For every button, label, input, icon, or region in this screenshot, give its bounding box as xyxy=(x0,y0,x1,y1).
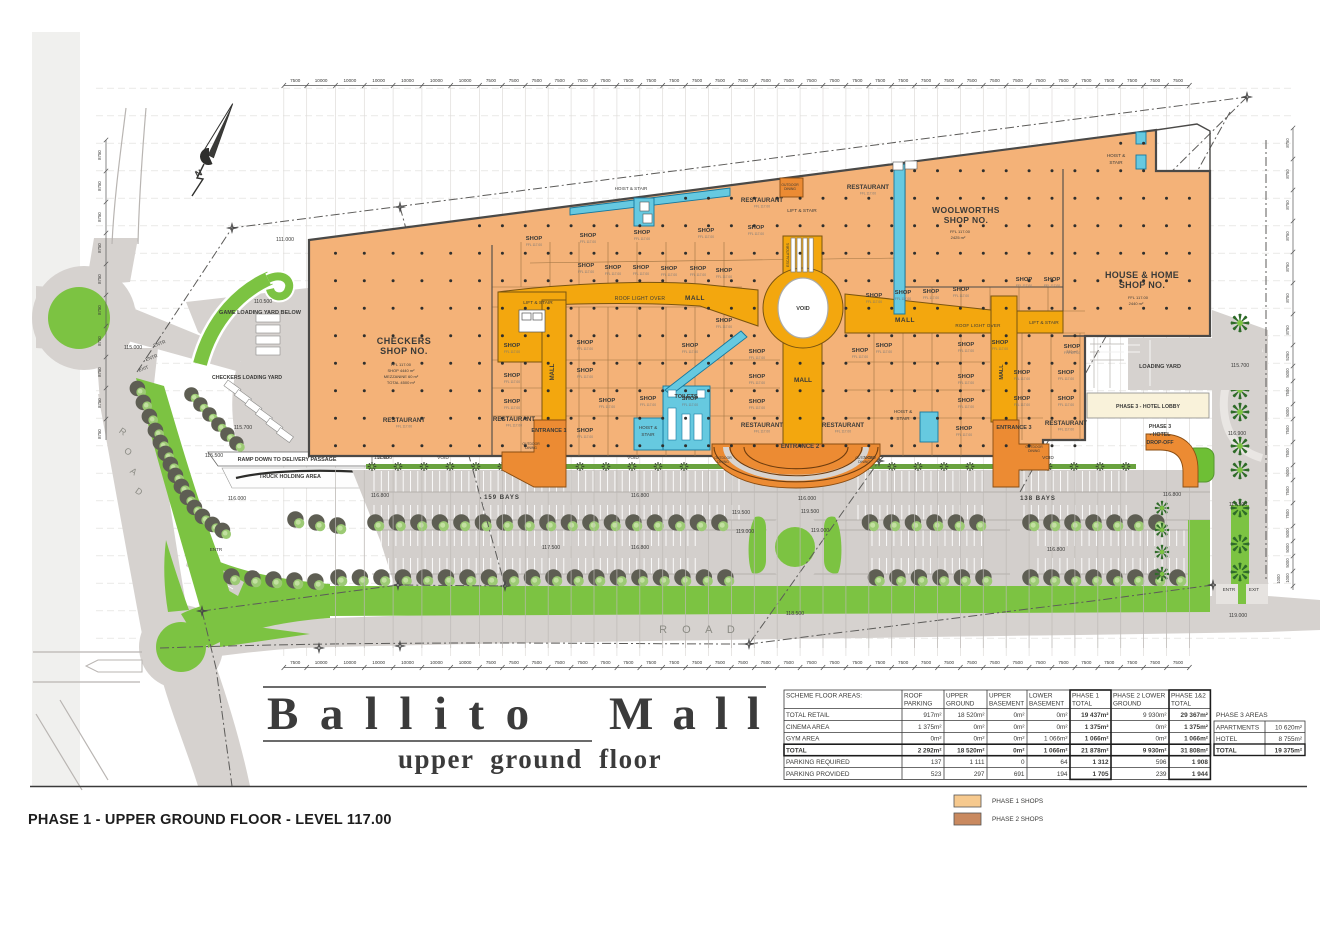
svg-text:8750: 8750 xyxy=(1285,293,1290,303)
svg-text:1 944: 1 944 xyxy=(1192,771,1208,778)
svg-text:FFL 117.00: FFL 117.00 xyxy=(698,235,714,239)
svg-text:7500: 7500 xyxy=(898,660,909,665)
svg-text:7500: 7500 xyxy=(944,78,955,83)
svg-text:7500: 7500 xyxy=(1173,660,1184,665)
svg-text:740 m²: 740 m² xyxy=(1066,350,1078,354)
svg-text:7500: 7500 xyxy=(1104,660,1115,665)
svg-text:117.500: 117.500 xyxy=(1229,502,1247,508)
svg-text:18 520m²: 18 520m² xyxy=(957,748,984,755)
svg-text:7500: 7500 xyxy=(290,78,301,83)
svg-text:FFL 117.00: FFL 117.00 xyxy=(396,425,412,429)
svg-text:8750: 8750 xyxy=(97,305,102,315)
svg-text:FFL 117.00: FFL 117.00 xyxy=(690,273,706,277)
svg-text:FFL 117.00: FFL 117.00 xyxy=(860,192,876,196)
svg-text:SCHEME FLOOR AREAS:: SCHEME FLOOR AREAS: xyxy=(786,693,862,700)
svg-text:7500: 7500 xyxy=(1013,660,1024,665)
svg-text:FFL 117.00: FFL 117.00 xyxy=(958,349,974,353)
svg-text:SHOP: SHOP xyxy=(1014,396,1031,402)
svg-text:10000: 10000 xyxy=(315,78,328,83)
svg-text:115.000: 115.000 xyxy=(124,345,142,351)
svg-text:596: 596 xyxy=(1156,759,1167,766)
svg-text:5000: 5000 xyxy=(1285,543,1290,553)
svg-text:FFL 117.00: FFL 117.00 xyxy=(640,403,656,407)
svg-text:SHOP: SHOP xyxy=(923,289,940,295)
svg-text:8750: 8750 xyxy=(97,243,102,253)
svg-text:GROUND: GROUND xyxy=(1113,701,1142,708)
svg-text:8750: 8750 xyxy=(1285,138,1290,148)
svg-text:10000: 10000 xyxy=(315,660,328,665)
svg-text:1000: 1000 xyxy=(1276,574,1281,584)
svg-text:18 520m²: 18 520m² xyxy=(958,712,985,719)
svg-text:HOIST & STAIR: HOIST & STAIR xyxy=(615,186,648,191)
svg-text:116.800: 116.800 xyxy=(631,493,649,499)
svg-text:7500: 7500 xyxy=(829,78,840,83)
svg-text:FFL 117.00: FFL 117.00 xyxy=(633,272,649,276)
svg-text:ROOF: ROOF xyxy=(904,693,923,700)
svg-text:9 930m²: 9 930m² xyxy=(1143,712,1166,719)
svg-text:ENTR: ENTR xyxy=(210,547,223,552)
svg-text:FFL 117.00: FFL 117.00 xyxy=(504,406,520,410)
svg-text:HOIST &: HOIST & xyxy=(894,409,912,414)
svg-text:SHOP NO.: SHOP NO. xyxy=(380,346,428,356)
svg-text:FFL 117.00: FFL 117.00 xyxy=(682,403,698,407)
svg-text:SHOP: SHOP xyxy=(633,265,650,271)
svg-text:1 375m²: 1 375m² xyxy=(1184,724,1208,731)
svg-text:21 878m²: 21 878m² xyxy=(1081,748,1108,755)
svg-text:TOILETS: TOILETS xyxy=(674,394,697,400)
svg-text:FFL 117.00: FFL 117.00 xyxy=(866,300,882,304)
svg-text:SHOP: SHOP xyxy=(1016,277,1033,283)
svg-text:SHOP 4440 m²: SHOP 4440 m² xyxy=(387,368,415,373)
svg-text:UPPER: UPPER xyxy=(989,693,1011,700)
svg-text:1 375m²: 1 375m² xyxy=(1085,724,1109,731)
svg-text:7500: 7500 xyxy=(784,660,795,665)
svg-text:1 066m²: 1 066m² xyxy=(1184,736,1208,743)
svg-text:8 755m²: 8 755m² xyxy=(1279,736,1302,743)
svg-text:8750: 8750 xyxy=(1285,262,1290,272)
svg-text:7500: 7500 xyxy=(715,660,726,665)
svg-text:116.000: 116.000 xyxy=(798,496,816,502)
svg-text:239: 239 xyxy=(1156,771,1167,778)
svg-text:FFL 117.00: FFL 117.00 xyxy=(580,240,596,244)
svg-text:7500: 7500 xyxy=(875,78,886,83)
svg-text:10000: 10000 xyxy=(459,78,472,83)
svg-text:1 375m²: 1 375m² xyxy=(918,724,941,731)
svg-text:SHOP: SHOP xyxy=(992,340,1009,346)
svg-text:DINING: DINING xyxy=(525,446,537,450)
svg-text:RAMP DOWN TO DELIVERY PASSAGE: RAMP DOWN TO DELIVERY PASSAGE xyxy=(238,457,337,463)
svg-text:FFL 117.00: FFL 117.00 xyxy=(1128,295,1149,300)
svg-text:31 808m²: 31 808m² xyxy=(1181,748,1208,755)
svg-text:7500: 7500 xyxy=(784,78,795,83)
svg-text:SHOP: SHOP xyxy=(716,268,733,274)
svg-text:FFL 117.00: FFL 117.00 xyxy=(504,350,520,354)
svg-text:7500: 7500 xyxy=(921,78,932,83)
svg-text:116.000: 116.000 xyxy=(228,496,246,502)
svg-text:7500: 7500 xyxy=(1035,660,1046,665)
svg-text:7500: 7500 xyxy=(1035,78,1046,83)
svg-text:116.800: 116.800 xyxy=(631,545,649,551)
svg-text:1 908: 1 908 xyxy=(1192,759,1208,766)
svg-text:7500: 7500 xyxy=(898,78,909,83)
svg-text:7500: 7500 xyxy=(967,660,978,665)
svg-text:TOTAL: TOTAL xyxy=(1072,701,1092,708)
svg-text:19 437m²: 19 437m² xyxy=(1081,712,1108,719)
svg-text:FFL 117.00: FFL 117.00 xyxy=(852,355,868,359)
svg-text:7500: 7500 xyxy=(646,78,657,83)
svg-text:FFL 117.00: FFL 117.00 xyxy=(634,237,650,241)
svg-text:7500: 7500 xyxy=(623,78,634,83)
svg-text:SHOP: SHOP xyxy=(866,293,883,299)
svg-text:FFL 117.00: FFL 117.00 xyxy=(835,430,851,434)
svg-text:FFL 117.00: FFL 117.00 xyxy=(956,433,972,437)
svg-text:HOIST &: HOIST & xyxy=(639,425,657,430)
svg-text:BASEMENT: BASEMENT xyxy=(1029,701,1064,708)
svg-text:5000: 5000 xyxy=(1285,558,1290,568)
svg-text:Mall: Mall xyxy=(609,688,779,740)
svg-text:917m²: 917m² xyxy=(923,712,941,719)
svg-text:SHOP: SHOP xyxy=(690,266,707,272)
svg-text:TOTAL: TOTAL xyxy=(1216,748,1237,755)
svg-text:PHASE 2 SHOPS: PHASE 2 SHOPS xyxy=(992,816,1043,823)
svg-text:CHECKERS LOADING YARD: CHECKERS LOADING YARD xyxy=(212,375,282,381)
svg-text:7500: 7500 xyxy=(646,660,657,665)
svg-text:0m²: 0m² xyxy=(1155,724,1166,731)
svg-text:7500: 7500 xyxy=(738,660,749,665)
svg-text:upper ground floor: upper ground floor xyxy=(398,744,662,774)
svg-text:DINING: DINING xyxy=(1028,449,1040,453)
svg-text:UPPER: UPPER xyxy=(946,693,968,700)
svg-text:8750: 8750 xyxy=(97,212,102,222)
svg-text:7500: 7500 xyxy=(692,78,703,83)
svg-text:7500: 7500 xyxy=(806,660,817,665)
svg-text:RESTAURANT: RESTAURANT xyxy=(847,184,889,191)
svg-text:7500: 7500 xyxy=(1013,78,1024,83)
svg-text:FFL 117.00: FFL 117.00 xyxy=(504,380,520,384)
svg-text:FFL 117.00: FFL 117.00 xyxy=(577,375,593,379)
svg-text:7500: 7500 xyxy=(1285,448,1290,458)
svg-text:FFL 117.00: FFL 117.00 xyxy=(895,297,911,301)
svg-text:SHOP: SHOP xyxy=(599,398,616,404)
svg-text:FFL 117.00: FFL 117.00 xyxy=(682,350,698,354)
svg-text:FFL 117.00: FFL 117.00 xyxy=(1058,377,1074,381)
svg-text:7500: 7500 xyxy=(532,78,543,83)
svg-text:SHOP: SHOP xyxy=(953,287,970,293)
svg-text:SHOP: SHOP xyxy=(956,426,973,432)
svg-text:SHOP: SHOP xyxy=(698,228,715,234)
svg-text:119.500: 119.500 xyxy=(801,509,819,515)
svg-text:19 375m²: 19 375m² xyxy=(1275,748,1302,755)
svg-text:1 111: 1 111 xyxy=(969,759,984,766)
svg-text:GYM AREA: GYM AREA xyxy=(786,736,820,743)
svg-text:8750: 8750 xyxy=(97,274,102,284)
svg-text:PHASE 3: PHASE 3 xyxy=(1149,424,1171,430)
svg-text:APARTMENTS: APARTMENTS xyxy=(1216,725,1259,732)
svg-text:SHOP: SHOP xyxy=(1058,370,1075,376)
svg-text:10000: 10000 xyxy=(401,78,414,83)
svg-text:8750: 8750 xyxy=(97,181,102,191)
svg-text:111.000: 111.000 xyxy=(276,237,294,243)
svg-text:1 066m²: 1 066m² xyxy=(1044,748,1068,755)
svg-text:FFL 117.00: FFL 117.00 xyxy=(749,356,765,360)
svg-text:PHASE 2 LOWER: PHASE 2 LOWER xyxy=(1113,693,1166,700)
svg-text:0m²: 0m² xyxy=(1155,736,1166,743)
svg-text:SHOP: SHOP xyxy=(640,396,657,402)
svg-text:297: 297 xyxy=(974,771,985,778)
svg-text:BASEMENT: BASEMENT xyxy=(989,701,1024,708)
svg-text:FFL 117.00: FFL 117.00 xyxy=(1058,403,1074,407)
svg-text:PHASE 3 - HOTEL LOBBY: PHASE 3 - HOTEL LOBBY xyxy=(1116,404,1180,410)
svg-text:111.600: 111.600 xyxy=(374,455,392,461)
svg-text:10000: 10000 xyxy=(401,660,414,665)
svg-text:10000: 10000 xyxy=(372,660,385,665)
svg-text:FFL 117.00: FFL 117.00 xyxy=(605,272,621,276)
svg-text:10 620m²: 10 620m² xyxy=(1275,725,1302,732)
svg-text:SHOP: SHOP xyxy=(682,343,699,349)
svg-text:138 BAYS: 138 BAYS xyxy=(1020,496,1056,502)
svg-text:PHASE 1&2: PHASE 1&2 xyxy=(1171,693,1206,700)
svg-text:MALL: MALL xyxy=(685,295,705,302)
svg-text:0m²: 0m² xyxy=(1056,712,1067,719)
svg-text:SHOP: SHOP xyxy=(577,368,594,374)
svg-text:7500: 7500 xyxy=(509,660,520,665)
svg-text:FFL 117.00: FFL 117.00 xyxy=(1058,428,1074,432)
svg-text:7500: 7500 xyxy=(623,660,634,665)
svg-text:10000: 10000 xyxy=(459,660,472,665)
svg-text:- HOTEL: - HOTEL xyxy=(1150,432,1172,438)
svg-text:7500: 7500 xyxy=(875,660,886,665)
svg-text:RESTAURANT: RESTAURANT xyxy=(741,197,783,204)
svg-text:7500: 7500 xyxy=(486,78,497,83)
svg-text:FFL 117.00: FFL 117.00 xyxy=(526,243,542,247)
svg-text:7500: 7500 xyxy=(486,660,497,665)
svg-text:CINEMA AREA: CINEMA AREA xyxy=(786,724,830,731)
svg-text:7500: 7500 xyxy=(577,660,588,665)
svg-text:FFL 117.00: FFL 117.00 xyxy=(578,270,594,274)
svg-text:5000: 5000 xyxy=(1285,368,1290,378)
svg-text:159 BAYS: 159 BAYS xyxy=(484,495,520,501)
svg-text:MALL: MALL xyxy=(895,317,915,324)
svg-text:ENTR: ENTR xyxy=(1223,587,1236,592)
svg-text:SHOP: SHOP xyxy=(749,349,766,355)
svg-text:7500: 7500 xyxy=(1285,387,1290,397)
svg-text:0m²: 0m² xyxy=(1013,724,1024,731)
svg-text:119.000: 119.000 xyxy=(736,529,754,535)
svg-text:7500: 7500 xyxy=(692,660,703,665)
svg-text:2 292m²: 2 292m² xyxy=(918,748,942,755)
svg-text:TOTAL 4500 m²: TOTAL 4500 m² xyxy=(387,380,416,385)
svg-text:8750: 8750 xyxy=(1285,169,1290,179)
svg-text:FFL 117.00: FFL 117.00 xyxy=(992,347,1008,351)
svg-text:7500: 7500 xyxy=(669,78,680,83)
svg-text:7500: 7500 xyxy=(761,660,772,665)
svg-text:10000: 10000 xyxy=(372,78,385,83)
svg-text:RESTAURANT: RESTAURANT xyxy=(822,422,864,429)
svg-text:RESTAURANT: RESTAURANT xyxy=(383,417,425,424)
svg-text:FFL 117.00: FFL 117.00 xyxy=(391,362,412,367)
svg-text:SHOP: SHOP xyxy=(958,398,975,404)
svg-text:HOTEL: HOTEL xyxy=(1216,736,1238,743)
svg-text:7500: 7500 xyxy=(555,660,566,665)
svg-text:RESTAURANT: RESTAURANT xyxy=(1045,420,1087,427)
svg-text:7500: 7500 xyxy=(967,78,978,83)
svg-text:TOTAL RETAIL: TOTAL RETAIL xyxy=(786,712,830,719)
svg-text:FFL 117.00: FFL 117.00 xyxy=(1044,284,1060,288)
svg-text:10000: 10000 xyxy=(430,78,443,83)
svg-text:0m²: 0m² xyxy=(973,724,984,731)
svg-text:SHOP: SHOP xyxy=(716,318,733,324)
svg-text:2425 m²: 2425 m² xyxy=(951,235,966,240)
svg-text:SHOP: SHOP xyxy=(578,263,595,269)
svg-text:10000: 10000 xyxy=(344,78,357,83)
svg-text:FFL 117.00: FFL 117.00 xyxy=(661,273,677,277)
svg-text:PARKING REQUIRED: PARKING REQUIRED xyxy=(786,759,850,766)
svg-text:8750: 8750 xyxy=(97,398,102,408)
svg-text:8750: 8750 xyxy=(97,150,102,160)
svg-text:7500: 7500 xyxy=(1285,486,1290,496)
svg-text:7500: 7500 xyxy=(290,660,301,665)
svg-text:0m²: 0m² xyxy=(1013,748,1024,755)
svg-text:SHOP: SHOP xyxy=(749,399,766,405)
svg-text:115.700: 115.700 xyxy=(234,425,252,431)
svg-text:SHOP: SHOP xyxy=(895,290,912,296)
svg-text:SHOP: SHOP xyxy=(504,343,521,349)
svg-text:FFL 117.00: FFL 117.00 xyxy=(876,350,892,354)
svg-text:SHOP: SHOP xyxy=(958,374,975,380)
svg-text:FFL 117.00: FFL 117.00 xyxy=(748,232,764,236)
svg-text:1 705: 1 705 xyxy=(1093,771,1109,778)
svg-text:0m²: 0m² xyxy=(973,736,984,743)
svg-text:691: 691 xyxy=(1014,771,1025,778)
svg-text:SHOP: SHOP xyxy=(504,373,521,379)
svg-text:7500: 7500 xyxy=(532,660,543,665)
svg-text:118.500: 118.500 xyxy=(786,611,804,617)
svg-text:7500: 7500 xyxy=(1081,660,1092,665)
svg-text:FFL 117.00: FFL 117.00 xyxy=(577,347,593,351)
svg-text:119.500: 119.500 xyxy=(732,510,750,516)
svg-text:7500: 7500 xyxy=(1127,660,1138,665)
svg-text:8750: 8750 xyxy=(97,336,102,346)
svg-text:9 930m²: 9 930m² xyxy=(1143,748,1167,755)
svg-text:1000: 1000 xyxy=(1285,573,1290,583)
svg-text:1 312: 1 312 xyxy=(1093,759,1109,766)
svg-text:R O A D: R O A D xyxy=(659,624,741,636)
svg-text:VOID: VOID xyxy=(796,306,809,312)
svg-text:116.800: 116.800 xyxy=(1047,547,1065,553)
svg-text:TOTAL: TOTAL xyxy=(786,748,807,755)
svg-text:7500: 7500 xyxy=(806,78,817,83)
svg-text:SHOP: SHOP xyxy=(661,266,678,272)
svg-text:FFL 117.00: FFL 117.00 xyxy=(923,296,939,300)
svg-text:ROOF LIGHT OVER: ROOF LIGHT OVER xyxy=(955,323,1001,328)
svg-text:VOID: VOID xyxy=(627,455,639,461)
svg-text:7500: 7500 xyxy=(1150,78,1161,83)
svg-text:GAME LOADING YARD BELOW: GAME LOADING YARD BELOW xyxy=(219,310,302,316)
svg-text:PHASE 1 SHOPS: PHASE 1 SHOPS xyxy=(992,798,1043,805)
svg-text:8750: 8750 xyxy=(97,429,102,439)
svg-text:SHOP: SHOP xyxy=(876,343,893,349)
svg-text:7500: 7500 xyxy=(738,78,749,83)
svg-text:SHOP: SHOP xyxy=(504,399,521,405)
svg-text:FFL 117.00: FFL 117.00 xyxy=(749,381,765,385)
svg-text:ENTRANCE 1: ENTRANCE 1 xyxy=(531,428,566,434)
svg-text:VOID: VOID xyxy=(1042,455,1054,461)
svg-text:SHOP: SHOP xyxy=(634,230,651,236)
svg-text:0m²: 0m² xyxy=(1013,736,1024,743)
svg-text:FFL 117.00: FFL 117.00 xyxy=(577,435,593,439)
svg-text:7500: 7500 xyxy=(761,78,772,83)
svg-text:7500: 7500 xyxy=(921,660,932,665)
svg-text:PARKING PROVIDED: PARKING PROVIDED xyxy=(786,771,850,778)
svg-text:SHOP: SHOP xyxy=(958,342,975,348)
svg-text:7500: 7500 xyxy=(1173,78,1184,83)
svg-text:116.900: 116.900 xyxy=(1228,431,1246,437)
svg-text:523: 523 xyxy=(931,771,942,778)
svg-text:0: 0 xyxy=(1021,759,1025,766)
svg-text:STAIR: STAIR xyxy=(1109,160,1123,165)
svg-text:64: 64 xyxy=(1060,759,1068,766)
svg-text:SHOP: SHOP xyxy=(1058,396,1075,402)
svg-text:117.500: 117.500 xyxy=(542,545,560,551)
svg-text:SHOP: SHOP xyxy=(749,374,766,380)
svg-text:DROP-OFF: DROP-OFF xyxy=(1146,440,1173,446)
svg-text:SHOP NO.: SHOP NO. xyxy=(1119,280,1165,290)
svg-text:7500: 7500 xyxy=(669,660,680,665)
svg-text:5000: 5000 xyxy=(1285,407,1290,417)
svg-text:FFL 117.00: FFL 117.00 xyxy=(716,325,732,329)
svg-text:HOIST &: HOIST & xyxy=(1107,153,1125,158)
svg-text:MALL: MALL xyxy=(794,377,812,384)
svg-text:ENTRANCE 3: ENTRANCE 3 xyxy=(996,425,1031,431)
svg-text:FFL 117.00: FFL 117.00 xyxy=(506,424,522,428)
svg-text:5250: 5250 xyxy=(1285,351,1290,361)
svg-text:DINING: DINING xyxy=(717,460,729,464)
svg-text:FFL 117.00: FFL 117.00 xyxy=(958,381,974,385)
svg-text:7500: 7500 xyxy=(1058,78,1069,83)
svg-text:MALL: MALL xyxy=(550,363,556,380)
svg-text:PARKING: PARKING xyxy=(904,701,932,708)
svg-text:DINING: DINING xyxy=(784,187,796,191)
svg-text:WOOLWORTHS: WOOLWORTHS xyxy=(932,205,1000,215)
svg-text:RESTAURANT: RESTAURANT xyxy=(493,416,535,423)
svg-text:STAIR: STAIR xyxy=(641,432,655,437)
svg-text:SHOP: SHOP xyxy=(577,428,594,434)
svg-text:SHOP: SHOP xyxy=(577,340,594,346)
svg-text:7500: 7500 xyxy=(600,78,611,83)
svg-text:119.000: 119.000 xyxy=(1229,613,1247,619)
svg-text:5000: 5000 xyxy=(1285,528,1290,538)
svg-text:FFL 117.00: FFL 117.00 xyxy=(716,275,732,279)
svg-text:FFL 117.00: FFL 117.00 xyxy=(754,430,770,434)
svg-text:SHOP: SHOP xyxy=(1044,277,1061,283)
svg-text:7500: 7500 xyxy=(852,660,863,665)
svg-text:PHASE 3 AREAS: PHASE 3 AREAS xyxy=(1216,712,1268,719)
svg-text:7500: 7500 xyxy=(1285,509,1290,519)
svg-text:STAIR: STAIR xyxy=(896,416,910,421)
svg-text:7500: 7500 xyxy=(509,78,520,83)
svg-text:PHASE 1 - UPPER GROUND FLOOR -: PHASE 1 - UPPER GROUND FLOOR - LEVEL 117… xyxy=(28,812,392,828)
svg-text:8750: 8750 xyxy=(1285,231,1290,241)
svg-text:SHOP: SHOP xyxy=(852,348,869,354)
svg-text:FFL 117.00: FFL 117.00 xyxy=(1014,377,1030,381)
svg-text:FFL 117.00: FFL 117.00 xyxy=(950,229,971,234)
svg-text:FFL 117.00: FFL 117.00 xyxy=(1014,403,1030,407)
svg-text:SHOP NO.: SHOP NO. xyxy=(944,215,989,225)
svg-text:194: 194 xyxy=(1057,771,1068,778)
svg-text:8750: 8750 xyxy=(97,367,102,377)
svg-text:8750: 8750 xyxy=(1285,325,1290,335)
svg-text:115.500: 115.500 xyxy=(205,453,223,459)
